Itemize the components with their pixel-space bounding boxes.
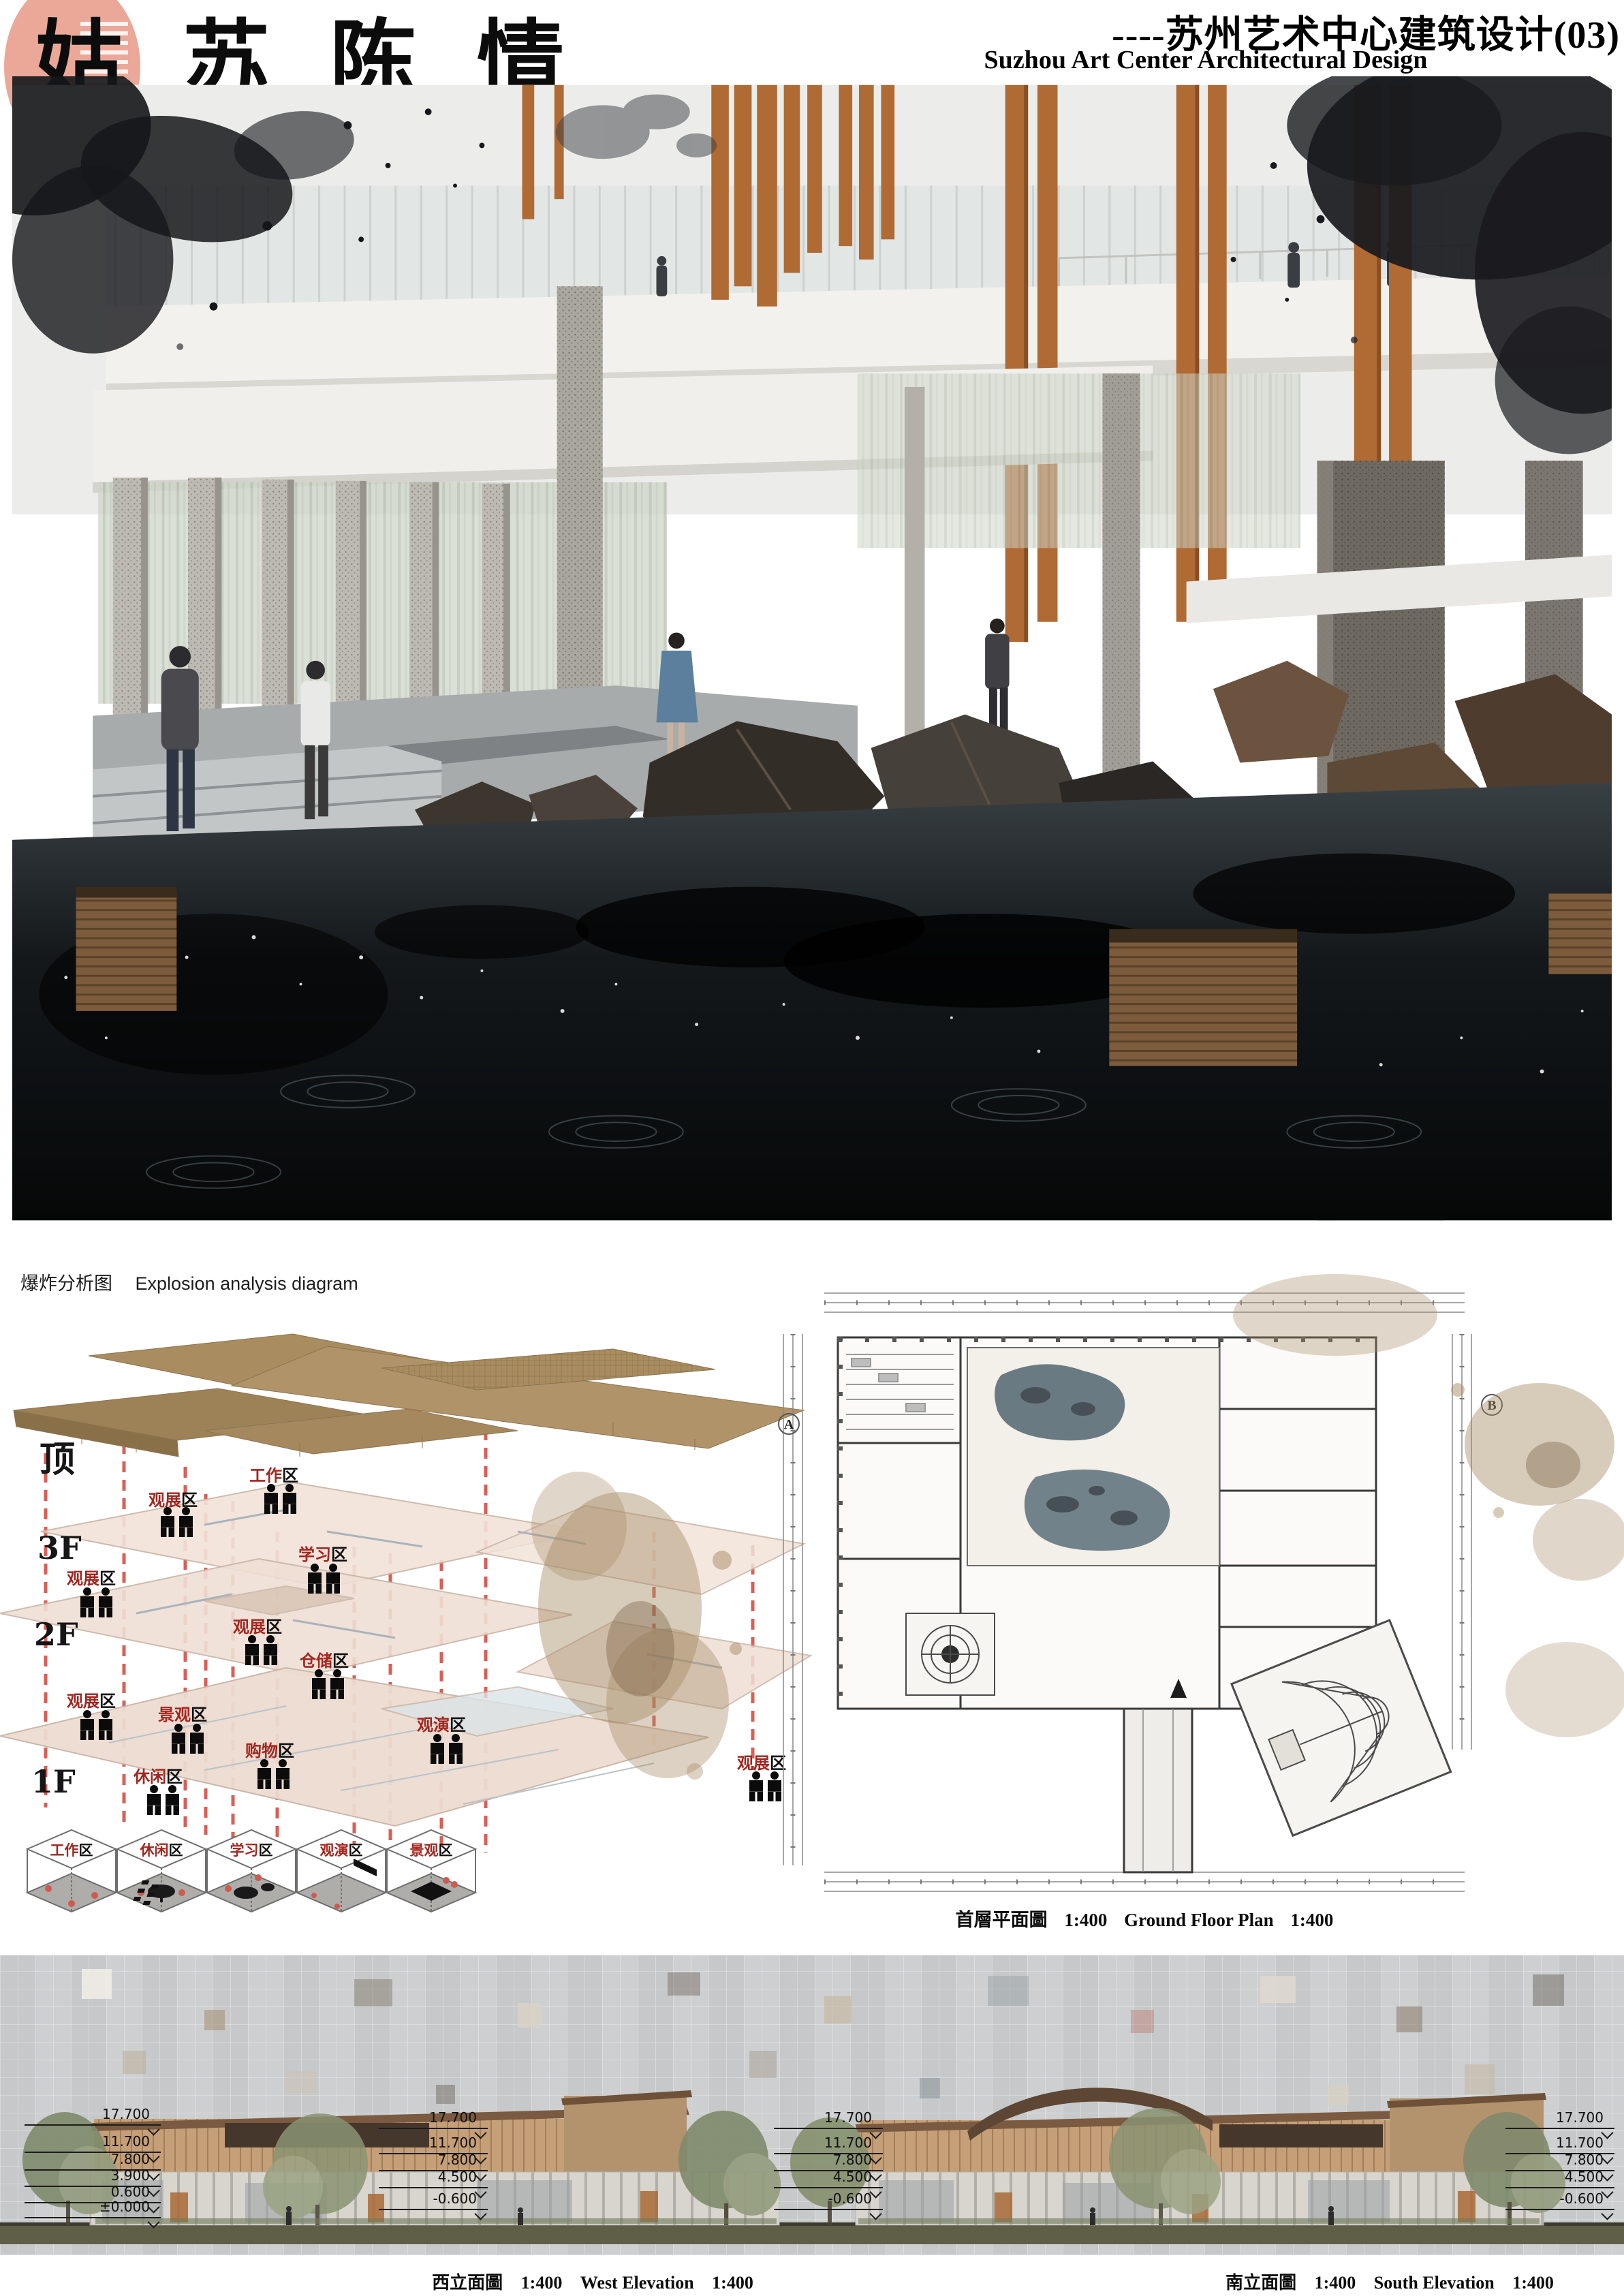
legend-label: 休闲区 <box>140 1840 183 1860</box>
people-icon <box>431 1734 463 1764</box>
floor-label-roof: 顶 <box>40 1431 75 1482</box>
people-icon <box>147 1785 179 1815</box>
zone-label: 观演区 <box>417 1711 466 1735</box>
zone-label: 景观区 <box>158 1701 207 1725</box>
level-markers-b: 17.700 11.700 7.800 4.500 -0.600 <box>379 1955 488 2255</box>
level-markers-d: 17.700 11.700 7.800 4.500 -0.600 <box>1505 1955 1614 2255</box>
plan-caption-cn: 首層平面圖 <box>956 1910 1048 1930</box>
legend-label: 景观区 <box>410 1840 453 1860</box>
plan-scale-2: 1:400 <box>1290 1910 1333 1930</box>
people-icon <box>257 1759 290 1789</box>
people-icon <box>161 1507 193 1537</box>
ink-splash-decor <box>518 1267 1624 1928</box>
zone-label: 观展区 <box>67 1565 116 1589</box>
level-markers-a: 17.700 11.700 7.800 3.900 0.600 ±0.000 <box>25 1955 161 2255</box>
main-render-image <box>12 76 1612 1229</box>
floor-label-3f: 3F <box>37 1530 82 1566</box>
floor-label-2f: 2F <box>34 1616 78 1653</box>
plan-caption-en: Ground Floor Plan <box>1124 1910 1274 1930</box>
legend-label: 学习区 <box>230 1840 273 1860</box>
people-icon <box>312 1669 344 1699</box>
zone-label: 仓储区 <box>300 1647 349 1671</box>
plan-caption: 首層平面圖 1:400 Ground Floor Plan 1:400 <box>886 1905 1403 1932</box>
legend-label: 工作区 <box>50 1840 93 1860</box>
zone-label: 观展区 <box>233 1613 282 1637</box>
legend-label: 观演区 <box>320 1840 363 1860</box>
plan-scale: 1:400 <box>1064 1910 1107 1930</box>
floor-label-1f: 1F <box>31 1763 76 1800</box>
people-icon <box>308 1564 340 1594</box>
people-icon <box>245 1635 277 1665</box>
people-icon <box>172 1724 204 1754</box>
zone-label: 学习区 <box>298 1541 347 1565</box>
subtitle-english: Suzhou Art Center Architectural Design <box>845 45 1567 75</box>
south-elevation-caption: 南立面圖 1:400 South Elevation 1:400 <box>1219 2269 1561 2294</box>
zone-label: 购物区 <box>245 1737 294 1761</box>
explosion-title-cn: 爆炸分析图 <box>20 1273 112 1294</box>
people-icon <box>264 1484 296 1514</box>
people-icon <box>80 1710 112 1740</box>
zone-label: 观展区 <box>67 1688 116 1711</box>
zone-label: 工作区 <box>249 1462 298 1486</box>
explosion-title-en: Explosion analysis diagram <box>136 1273 358 1294</box>
people-icon <box>80 1587 112 1617</box>
level-markers-c: 17.700 11.700 7.800 4.500 -0.600 <box>774 1955 883 2255</box>
presentation-board: 姑苏陈情 ----苏州艺术中心建筑设计(03) Suzhou Art Cente… <box>0 0 1624 2296</box>
west-elevation-caption: 西立面圖 1:400 West Elevation 1:400 <box>425 2269 760 2294</box>
explosion-section-title: 爆炸分析图 Explosion analysis diagram <box>20 1269 358 1295</box>
zone-label: 休闲区 <box>134 1763 183 1787</box>
